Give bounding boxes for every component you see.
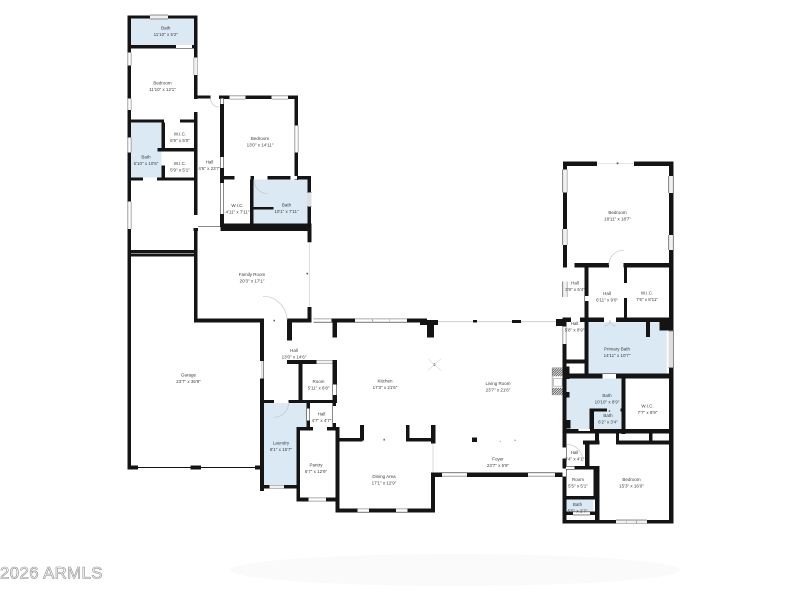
- svg-text:3'8" x 5'4": 3'8" x 5'4": [565, 287, 585, 292]
- svg-text:Room: Room: [572, 477, 584, 482]
- svg-text:7'7" x 8'9": 7'7" x 8'9": [638, 410, 658, 415]
- svg-text:15'3" x 16'0": 15'3" x 16'0": [619, 484, 644, 489]
- svg-text:Bath: Bath: [161, 26, 171, 31]
- svg-text:W.I.C.: W.I.C.: [174, 161, 186, 166]
- svg-text:5'5" x 2'7": 5'5" x 2'7": [568, 509, 588, 514]
- svg-text:18'11" x 18'7": 18'11" x 18'7": [604, 217, 631, 222]
- svg-text:7'6" x 8'11": 7'6" x 8'11": [636, 297, 658, 302]
- svg-text:11'10" x 12'1": 11'10" x 12'1": [149, 87, 176, 92]
- svg-text:17'1" x 12'9": 17'1" x 12'9": [372, 481, 397, 486]
- svg-text:13'0" x 14'11": 13'0" x 14'11": [247, 143, 274, 148]
- svg-text:Bath: Bath: [603, 413, 613, 418]
- svg-text:Bedroom: Bedroom: [622, 477, 641, 482]
- svg-text:5'9" x 5'0": 5'9" x 5'0": [170, 138, 190, 143]
- svg-text:Room: Room: [312, 379, 324, 384]
- svg-text:Pantry: Pantry: [309, 463, 323, 468]
- svg-text:6'2" x 3'4": 6'2" x 3'4": [598, 420, 618, 425]
- svg-text:5'10" x 10'5": 5'10" x 10'5": [134, 161, 159, 166]
- svg-text:23'7" x 5'9": 23'7" x 5'9": [487, 463, 510, 468]
- svg-text:23'7" x 21'6": 23'7" x 21'6": [486, 388, 511, 393]
- svg-text:6'11" x 9'0": 6'11" x 9'0": [596, 298, 618, 303]
- svg-text:10'10" x 8'9": 10'10" x 8'9": [595, 400, 620, 405]
- svg-text:5'11" x 6'8": 5'11" x 6'8": [308, 386, 330, 391]
- svg-text:Kitchen: Kitchen: [377, 379, 393, 384]
- svg-text:Garage: Garage: [181, 373, 197, 378]
- svg-text:Bath: Bath: [282, 203, 292, 208]
- svg-text:Family Room: Family Room: [239, 272, 266, 277]
- svg-text:Bedroom: Bedroom: [153, 81, 172, 86]
- svg-text:Hall: Hall: [603, 291, 611, 296]
- svg-text:4'6" x 23'7": 4'6" x 23'7": [198, 166, 221, 171]
- svg-text:5'8" x 8'9": 5'8" x 8'9": [565, 328, 585, 333]
- svg-text:Laundry: Laundry: [273, 441, 290, 446]
- svg-text:Hall: Hall: [206, 160, 214, 165]
- svg-text:Bedroom: Bedroom: [251, 136, 270, 141]
- svg-text:Primary Bath: Primary Bath: [604, 347, 631, 352]
- svg-text:20'3" x 17'1": 20'3" x 17'1": [240, 279, 265, 284]
- svg-text:13'0" x 14'6": 13'0" x 14'6": [282, 355, 307, 360]
- svg-text:8'1" x 15'7": 8'1" x 15'7": [270, 447, 293, 452]
- svg-text:5'5" x 5'1": 5'5" x 5'1": [568, 484, 588, 489]
- svg-text:23'7" x 36'9": 23'7" x 36'9": [176, 379, 201, 384]
- svg-text:Bedroom: Bedroom: [608, 210, 627, 215]
- svg-text:6'7" x 12'9": 6'7" x 12'9": [305, 469, 328, 474]
- svg-text:4'7" x 4'7": 4'7" x 4'7": [312, 418, 332, 423]
- svg-text:W.I.C.: W.I.C.: [641, 404, 653, 409]
- svg-text:17'3" x 21'6": 17'3" x 21'6": [373, 385, 398, 390]
- svg-text:Bath: Bath: [573, 502, 583, 507]
- svg-text:10'1" x 7'11": 10'1" x 7'11": [274, 209, 299, 214]
- svg-text:Hall: Hall: [571, 450, 579, 455]
- svg-text:Living Room: Living Room: [485, 381, 510, 386]
- svg-text:14'11" x 10'7": 14'11" x 10'7": [604, 353, 631, 358]
- svg-text:2026 ARMLS: 2026 ARMLS: [0, 564, 103, 583]
- svg-text:Hall: Hall: [571, 321, 579, 326]
- svg-text:5'9" x 5'1": 5'9" x 5'1": [170, 168, 190, 173]
- svg-text:Hall: Hall: [290, 348, 298, 353]
- svg-text:W.I.C.: W.I.C.: [641, 291, 653, 296]
- svg-text:W.I.C.: W.I.C.: [174, 132, 186, 137]
- svg-text:11'10" x 5'2": 11'10" x 5'2": [154, 32, 179, 37]
- svg-text:Bath: Bath: [141, 155, 151, 160]
- svg-text:Hall: Hall: [571, 281, 579, 286]
- svg-text:W.I.C.: W.I.C.: [231, 203, 243, 208]
- svg-text:Dining Area: Dining Area: [372, 474, 396, 479]
- svg-text:Bath: Bath: [602, 393, 612, 398]
- svg-text:Foyer: Foyer: [492, 457, 504, 462]
- svg-text:3'4" x 4'1": 3'4" x 4'1": [565, 457, 585, 462]
- svg-text:4'11" x 7'11": 4'11" x 7'11": [225, 210, 249, 215]
- svg-text:Hall: Hall: [318, 412, 326, 417]
